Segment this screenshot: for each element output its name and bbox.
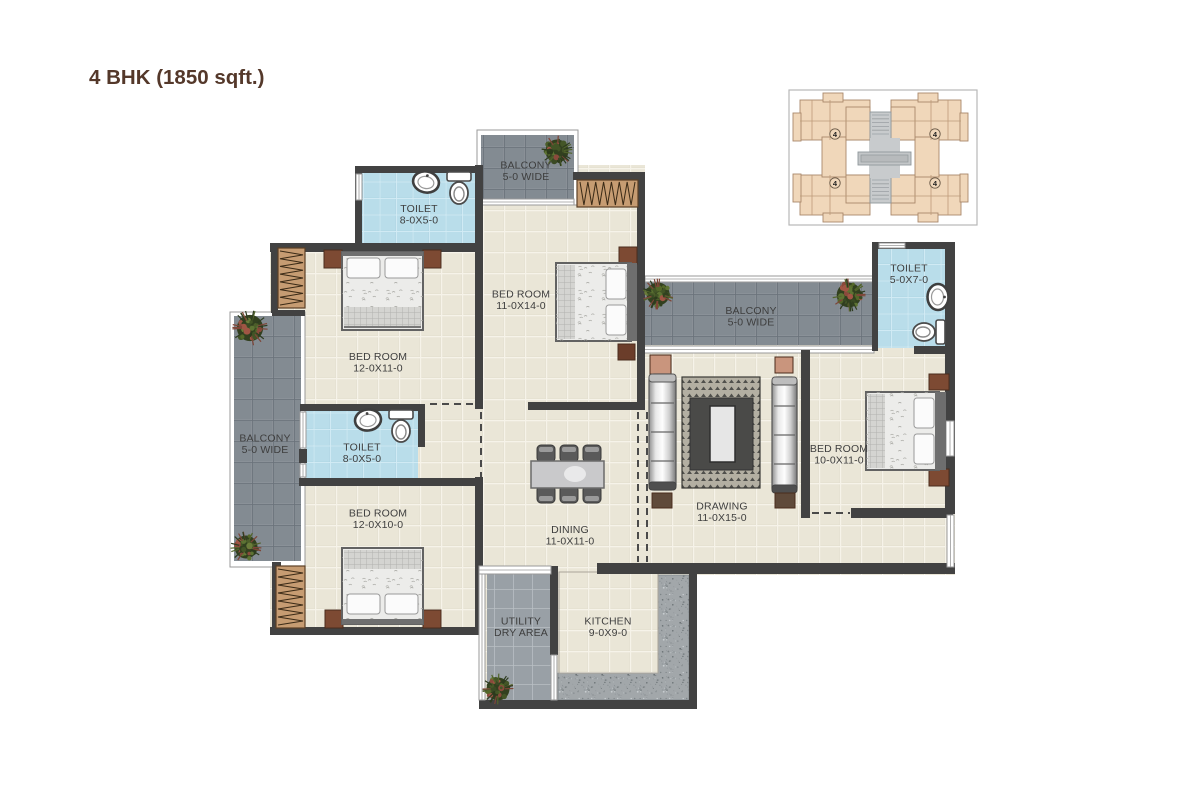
svg-text:BALCONY: BALCONY	[725, 305, 776, 317]
svg-text:10-0X11-0: 10-0X11-0	[814, 455, 864, 467]
svg-text:TOILET: TOILET	[343, 442, 381, 454]
svg-text:BED ROOM: BED ROOM	[810, 443, 868, 455]
svg-text:8-0X5-0: 8-0X5-0	[400, 215, 438, 227]
svg-text:8-0X5-0: 8-0X5-0	[343, 453, 381, 465]
svg-text:BED ROOM: BED ROOM	[492, 289, 550, 301]
svg-text:12-0X10-0: 12-0X10-0	[353, 519, 403, 531]
svg-text:DRAWING: DRAWING	[696, 501, 747, 513]
svg-text:5-0 WIDE: 5-0 WIDE	[242, 444, 289, 456]
svg-text:KITCHEN: KITCHEN	[584, 616, 631, 628]
svg-text:TOILET: TOILET	[400, 203, 438, 215]
svg-text:11-0X14-0: 11-0X14-0	[496, 300, 546, 312]
svg-text:BED ROOM: BED ROOM	[349, 508, 407, 520]
svg-text:BALCONY: BALCONY	[500, 160, 551, 172]
svg-text:UTILITY: UTILITY	[501, 616, 541, 628]
svg-text:11-0X15-0: 11-0X15-0	[697, 512, 747, 524]
svg-text:BED ROOM: BED ROOM	[349, 351, 407, 363]
svg-text:TOILET: TOILET	[890, 263, 928, 275]
svg-text:BALCONY: BALCONY	[239, 433, 290, 445]
svg-text:5-0X7-0: 5-0X7-0	[890, 274, 928, 286]
svg-text:11-0X11-0: 11-0X11-0	[546, 536, 595, 548]
svg-text:DINING: DINING	[551, 524, 589, 536]
svg-text:DRY AREA: DRY AREA	[494, 627, 548, 639]
svg-text:9-0X9-0: 9-0X9-0	[589, 627, 627, 639]
svg-text:5-0 WIDE: 5-0 WIDE	[728, 317, 775, 329]
svg-text:12-0X11-0: 12-0X11-0	[353, 363, 403, 375]
svg-text:5-0 WIDE: 5-0 WIDE	[503, 171, 550, 183]
svg-text:4 BHK (1850 sqft.): 4 BHK (1850 sqft.)	[89, 66, 264, 89]
